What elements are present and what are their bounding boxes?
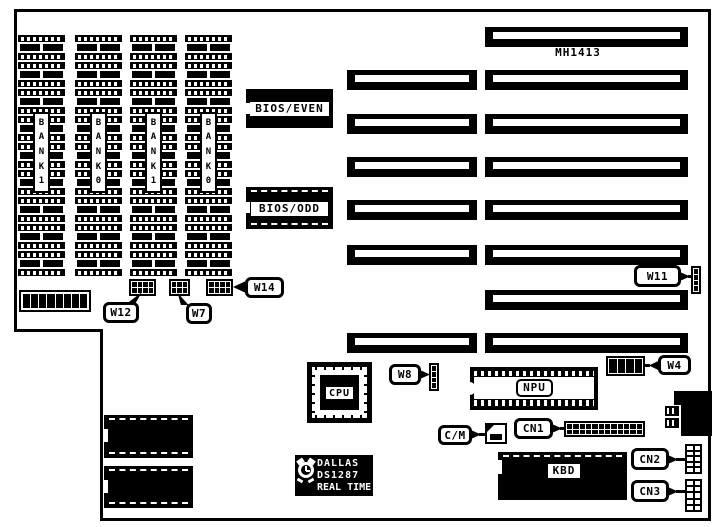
ram-chip-pins <box>75 80 122 87</box>
dram-chip <box>104 415 193 458</box>
ram-chip-pins <box>185 62 232 69</box>
ram-chip-body <box>18 204 65 215</box>
ram-chip-bar <box>43 260 63 267</box>
jumper-w12-pins-pin <box>143 288 148 293</box>
ram-chip <box>130 224 177 249</box>
ram-chip-bar <box>77 206 97 213</box>
pin-slots <box>21 217 62 221</box>
ram-chip <box>18 197 65 222</box>
ram-chip-bar <box>100 233 120 240</box>
jumper-w14-pins-pin <box>220 288 225 293</box>
ram-chip-bar <box>20 206 40 213</box>
npu-pins-bottom <box>474 400 594 406</box>
bank-letter: A <box>206 133 211 142</box>
pin-slots <box>188 91 229 95</box>
bank-letter: 1 <box>39 177 44 186</box>
ram-chip-bar <box>43 206 63 213</box>
expansion-slot-long <box>485 200 688 220</box>
dip-switch-segment <box>31 294 38 308</box>
ram-chip-bar <box>132 233 152 240</box>
slot-contact-stripe <box>493 119 680 126</box>
bios-even-label: BIOS/EVEN <box>250 102 329 116</box>
ram-chip <box>130 62 177 87</box>
dip-switch-segment <box>64 294 71 308</box>
pin-slots <box>78 217 119 221</box>
ram-chip-pins <box>130 89 177 96</box>
pin-slots <box>133 253 174 257</box>
jumper-w12-pins-pin <box>138 282 143 287</box>
pin-slots <box>188 82 229 86</box>
connector-cn3-pins <box>685 479 702 512</box>
ram-chip-body <box>185 42 232 53</box>
expansion-slot-short <box>347 157 477 177</box>
ram-chip-pins <box>130 53 177 60</box>
expansion-slot-short <box>347 114 477 134</box>
pin-slots <box>78 37 119 41</box>
connector-cn3-pins-pin <box>687 481 693 485</box>
dip-switch-segment <box>56 294 63 308</box>
chip-notch <box>104 429 108 442</box>
jumper-w8-pins-pin <box>432 383 436 388</box>
callout-line <box>676 458 686 461</box>
bank-label-3: BANK0 <box>200 112 217 193</box>
ram-chip-pins <box>185 35 232 42</box>
ram-chip-body <box>130 258 177 269</box>
ram-chip-pins <box>75 251 122 258</box>
chip-notch <box>246 202 250 213</box>
slot-contact-stripe <box>493 162 680 169</box>
ram-chip-pins <box>130 62 177 69</box>
connector-cn3-pins-pin <box>687 487 693 491</box>
ram-chip-pins <box>18 242 65 249</box>
board-step-horizontal <box>14 329 103 332</box>
decorative-shape <box>109 469 188 471</box>
connector-cn1-pins-pin <box>586 430 591 435</box>
ram-chip-body <box>130 96 177 107</box>
jumper-w12-pins-pin <box>138 288 143 293</box>
bank-letter: K <box>206 163 211 172</box>
callout-cn3: CN3 <box>631 480 669 502</box>
jumper-w4-pins-pin <box>635 359 643 373</box>
ram-chip <box>185 62 232 87</box>
jumper-w4-pins-pin <box>609 359 617 373</box>
ram-chip-pins <box>18 224 65 231</box>
expansion-slot-long <box>485 114 688 134</box>
ram-chip-bar <box>187 233 207 240</box>
ram-chip-pins <box>75 269 122 276</box>
ram-chip-bar <box>187 98 207 105</box>
ram-chip-body <box>130 204 177 215</box>
ram-chip-bar <box>187 44 207 51</box>
bank-label-1: BANK0 <box>90 112 107 193</box>
bank-letter: A <box>151 133 156 142</box>
ram-chip-pins <box>75 35 122 42</box>
jumper-w8-pins-pin <box>432 378 436 383</box>
connector-cn1-pins-pin <box>586 424 591 429</box>
connector-cn1-pins-pin <box>567 424 572 429</box>
edge-connector-pin-block <box>665 418 679 428</box>
jumper-w12-pins-pin <box>143 282 148 287</box>
npu-pins-top <box>474 371 594 376</box>
ram-chip-body <box>75 42 122 53</box>
model-number-label: MH1413 <box>518 46 638 59</box>
ram-chip-pins <box>130 224 177 231</box>
decorative-shape <box>315 367 364 370</box>
bank-letter: K <box>96 163 101 172</box>
ram-chip-pins <box>75 53 122 60</box>
ram-chip-bar <box>155 98 175 105</box>
bank-letter: N <box>151 148 156 157</box>
callout-w11: W11 <box>634 265 681 287</box>
ram-chip <box>18 35 65 60</box>
ram-chip-pins <box>18 215 65 222</box>
jumper-w4-pins-pin <box>626 359 634 373</box>
ram-chip-pins <box>75 242 122 249</box>
chip-notch <box>104 480 108 493</box>
ram-chip-pins <box>75 62 122 69</box>
jumper-w12-pins-pin <box>132 288 137 293</box>
ram-chip-bar <box>132 206 152 213</box>
ram-chip-bar <box>210 71 230 78</box>
ram-chip-bar <box>155 206 175 213</box>
connector-cn1-pins-pin <box>605 424 610 429</box>
jumper-w8-pins <box>429 363 439 391</box>
pin-slots <box>78 55 119 59</box>
connector-cn1-pins-pin <box>637 430 642 435</box>
npu-label: NPU <box>516 379 553 397</box>
ram-chip-body <box>75 258 122 269</box>
connector-cn3-pins-pin <box>695 506 701 510</box>
jumper-w11-pins <box>691 266 701 294</box>
callout-w8: W8 <box>389 364 421 385</box>
jumper-w14-pins-pin <box>215 288 220 293</box>
pin-slots <box>188 226 229 230</box>
expansion-slot-long <box>485 157 688 177</box>
connector-cn3-pins-pin <box>687 500 693 504</box>
ram-chip-bar <box>20 71 40 78</box>
jumper-w14-pins <box>206 279 233 296</box>
pin-slots <box>21 82 62 86</box>
pin-slots <box>78 244 119 248</box>
ram-chip-body <box>18 69 65 80</box>
expansion-slot-short <box>347 70 477 90</box>
jumper-w7-pins <box>169 279 190 296</box>
jumper-w12-pins-pin <box>149 288 154 293</box>
bank-letter: B <box>96 119 101 128</box>
decorative-shape <box>364 372 367 413</box>
ram-chip-pins <box>18 197 65 204</box>
bank-letter: K <box>151 163 156 172</box>
rtc-function: REAL TIME <box>317 482 372 494</box>
ram-chip-body <box>18 258 65 269</box>
ram-chip-pins <box>130 242 177 249</box>
jumper-w4-pins <box>606 356 645 376</box>
ram-chip-pins <box>18 89 65 96</box>
rtc-part: DS1287 <box>317 470 372 482</box>
slot-contact-stripe <box>355 162 469 169</box>
pin-slots <box>78 226 119 230</box>
pin-slots <box>21 55 62 59</box>
jumper-w11-pins-pin <box>694 286 698 291</box>
dip-switch-segment <box>47 294 54 308</box>
ram-chip-bar <box>210 260 230 267</box>
connector-cn2-pins-pin <box>695 446 701 450</box>
connector-cn1-pins-pin <box>605 430 610 435</box>
connector-cn3-pins-pin <box>695 500 701 504</box>
connector-cn2-pins-pin <box>687 468 693 472</box>
connector-cn1-pins-pin <box>611 424 616 429</box>
connector-cn2-pins <box>685 444 702 474</box>
decorative-shape <box>308 478 315 484</box>
ram-chip-bar <box>77 98 97 105</box>
ram-chip-bar <box>210 98 230 105</box>
callout-cn1: CN1 <box>514 418 553 439</box>
jumper-w4-pins-pin <box>618 359 626 373</box>
connector-cn2-pins-pin <box>695 468 701 472</box>
ram-chip-bar <box>43 71 63 78</box>
ram-chip-bar <box>155 44 175 51</box>
callout-w7: W7 <box>186 303 212 324</box>
ram-chip-bar <box>77 233 97 240</box>
ram-chip-pins <box>18 62 65 69</box>
ram-chip-bar <box>43 233 63 240</box>
ram-chip <box>18 251 65 276</box>
ram-chip-pins <box>18 53 65 60</box>
connector-cn2-pins-pin <box>695 457 701 461</box>
callout-cm: C/M <box>438 425 472 445</box>
ram-chip-bar <box>20 233 40 240</box>
slot-contact-stripe <box>355 205 469 212</box>
ram-chip <box>75 62 122 87</box>
connector-cn1-pins-pin <box>580 424 585 429</box>
ram-chip <box>185 251 232 276</box>
ram-chip-body <box>75 204 122 215</box>
ram-chip-body <box>18 42 65 53</box>
jumper-w14-pins-pin <box>226 288 231 293</box>
pin-slots <box>188 253 229 257</box>
callout-w14: W14 <box>245 277 284 298</box>
ram-chip-pins <box>130 80 177 87</box>
ram-chip-pins <box>75 89 122 96</box>
dip-switch <box>19 290 91 312</box>
jumper-w14-pins-pin <box>215 282 220 287</box>
connector-cn1-pins-pin <box>630 430 635 435</box>
pin-slots <box>133 82 174 86</box>
connector-cn2-pins-pin <box>687 463 693 467</box>
pin-slots <box>78 64 119 68</box>
expansion-slot-long <box>485 70 688 90</box>
ram-chip-pins <box>18 80 65 87</box>
ram-chip-bar <box>155 260 175 267</box>
jumper-w8-pins-pin <box>432 372 436 377</box>
ram-chip-pins <box>75 197 122 204</box>
callout-line <box>645 364 650 367</box>
slot-contact-stripe <box>355 250 469 257</box>
jumper-w14-pins-pin <box>220 282 225 287</box>
edge-connector-body <box>681 404 712 436</box>
callout-line <box>479 433 486 436</box>
pin-slots <box>21 199 62 203</box>
bios-odd-label: BIOS/ODD <box>251 202 328 216</box>
jumper-w12-pins-pin <box>149 282 154 287</box>
expansion-slot-long <box>485 290 688 310</box>
ram-chip-pins <box>130 269 177 276</box>
connector-cn1-pins-pin <box>580 430 585 435</box>
connector-cn1-pins-pin <box>567 430 572 435</box>
ram-chip-bar <box>77 260 97 267</box>
callout-line <box>676 490 686 493</box>
ram-chip-bar <box>100 71 120 78</box>
rtc-brand: DALLAS <box>317 458 372 470</box>
ram-chip-pins <box>185 242 232 249</box>
ram-chip-body <box>75 231 122 242</box>
dip-switch-segment <box>72 294 79 308</box>
jumper-w11-pins-pin <box>694 281 698 286</box>
ram-chip-bar <box>77 44 97 51</box>
ram-chip <box>130 89 177 114</box>
decorative-shape <box>297 478 304 484</box>
ram-chip-body <box>18 231 65 242</box>
connector-cn1-pins-pin <box>618 424 623 429</box>
ram-chip-body <box>185 69 232 80</box>
bank-letter: N <box>206 148 211 157</box>
ram-chip <box>75 251 122 276</box>
jumper-w14-pins-pin <box>209 282 214 287</box>
connector-cn3-pins-pin <box>687 506 693 510</box>
pin-slots <box>188 37 229 41</box>
ram-chip-pins <box>18 35 65 42</box>
ram-chip-bar <box>100 206 120 213</box>
jumper-w12-pins-pin <box>132 282 137 287</box>
pin-slots <box>21 37 62 41</box>
slot-contact-stripe <box>493 338 680 345</box>
ram-chip <box>130 197 177 222</box>
expansion-slot-long <box>485 245 688 265</box>
ram-chip-body <box>75 69 122 80</box>
ram-chip-bar <box>20 44 40 51</box>
rtc-text: DALLAS DS1287 REAL TIME <box>317 458 372 494</box>
jumper-w12-pins <box>129 279 156 296</box>
pin-slots <box>133 226 174 230</box>
ram-chip-body <box>130 42 177 53</box>
bank-letter: K <box>39 163 44 172</box>
slot-contact-stripe <box>355 338 469 345</box>
pin-slots <box>133 244 174 248</box>
ram-chip-pins <box>130 215 177 222</box>
ram-chip-bar <box>187 206 207 213</box>
connector-cn3-pins-pin <box>695 487 701 491</box>
bank-letter: N <box>39 148 44 157</box>
ram-chip-bar <box>210 233 230 240</box>
ram-chip-pins <box>185 80 232 87</box>
connector-cn1-pins-pin <box>573 424 578 429</box>
decorative-shape <box>109 502 188 504</box>
ram-chip <box>130 251 177 276</box>
decorative-shape <box>315 415 364 418</box>
pin-slots <box>133 37 174 41</box>
expansion-slot-short <box>347 333 477 353</box>
ram-chip-pins <box>18 269 65 276</box>
connector-cn1-pins-pin <box>618 430 623 435</box>
pin-slots <box>133 55 174 59</box>
dip-switch-segment <box>80 294 87 308</box>
ram-chip-bar <box>100 44 120 51</box>
ram-chip <box>75 89 122 114</box>
ram-chip-pins <box>185 197 232 204</box>
pin-slots <box>78 253 119 257</box>
ram-chip <box>75 197 122 222</box>
bank-letter: B <box>39 119 44 128</box>
ram-chip-pins <box>185 89 232 96</box>
bank-letter: 0 <box>206 177 211 186</box>
bank-letter: N <box>96 148 101 157</box>
pin-slots <box>188 271 229 275</box>
alarm-clock-icon <box>297 459 316 484</box>
ram-chip-bar <box>155 71 175 78</box>
ram-chip-body <box>18 96 65 107</box>
ram-chip-body <box>185 96 232 107</box>
ram-chip <box>75 35 122 60</box>
connector-cn1-pins-pin <box>599 424 604 429</box>
ram-chip <box>18 89 65 114</box>
jumper-w7-pins-pin <box>183 288 187 293</box>
pin-slots <box>78 82 119 86</box>
pin-slots <box>188 64 229 68</box>
pin-slots <box>188 199 229 203</box>
bank-letter: 1 <box>151 177 156 186</box>
ram-chip-body <box>75 96 122 107</box>
bank-letter: B <box>151 119 156 128</box>
pin-slots <box>188 244 229 248</box>
decorative-shape <box>312 372 315 413</box>
motherboard-diagram: MH1413 BIOS/EVEN BIOS/ODD CPU NPU <box>0 0 713 527</box>
slot-contact-stripe <box>493 250 680 257</box>
ram-chip-pins <box>130 251 177 258</box>
ram-chip-bar <box>43 98 63 105</box>
decorative-shape <box>109 452 188 454</box>
bank-label-0: BANK1 <box>33 112 50 193</box>
ram-chip-bar <box>20 98 40 105</box>
bank-letter: A <box>96 133 101 142</box>
cm-component <box>485 423 507 444</box>
connector-cn3-pins-pin <box>695 493 701 497</box>
ram-chip-body <box>130 69 177 80</box>
slot-contact-stripe <box>493 32 680 39</box>
cm-corner-mark <box>487 425 494 432</box>
bank-letter: B <box>206 119 211 128</box>
slot-contact-stripe <box>493 75 680 82</box>
ram-chip <box>18 224 65 249</box>
pin-slots <box>21 271 62 275</box>
ram-chip-bar <box>43 44 63 51</box>
dip-switch-segment <box>39 294 46 308</box>
jumper-w7-pins-pin <box>177 282 181 287</box>
pin-slots <box>21 253 62 257</box>
connector-cn1-pins <box>564 421 645 437</box>
callout-w4: W4 <box>658 355 691 375</box>
ram-chip-pins <box>130 35 177 42</box>
expansion-slot-short <box>347 200 477 220</box>
ram-chip-pins <box>185 53 232 60</box>
bank-label-2: BANK1 <box>145 112 162 193</box>
kbd-chip: KBD <box>498 452 627 500</box>
connector-cn1-pins-pin <box>592 430 597 435</box>
jumper-w8-pins-pin <box>432 366 436 371</box>
ram-chip-bar <box>77 71 97 78</box>
chip-notch <box>498 460 502 474</box>
pin-slots <box>21 226 62 230</box>
ram-chip <box>18 62 65 87</box>
